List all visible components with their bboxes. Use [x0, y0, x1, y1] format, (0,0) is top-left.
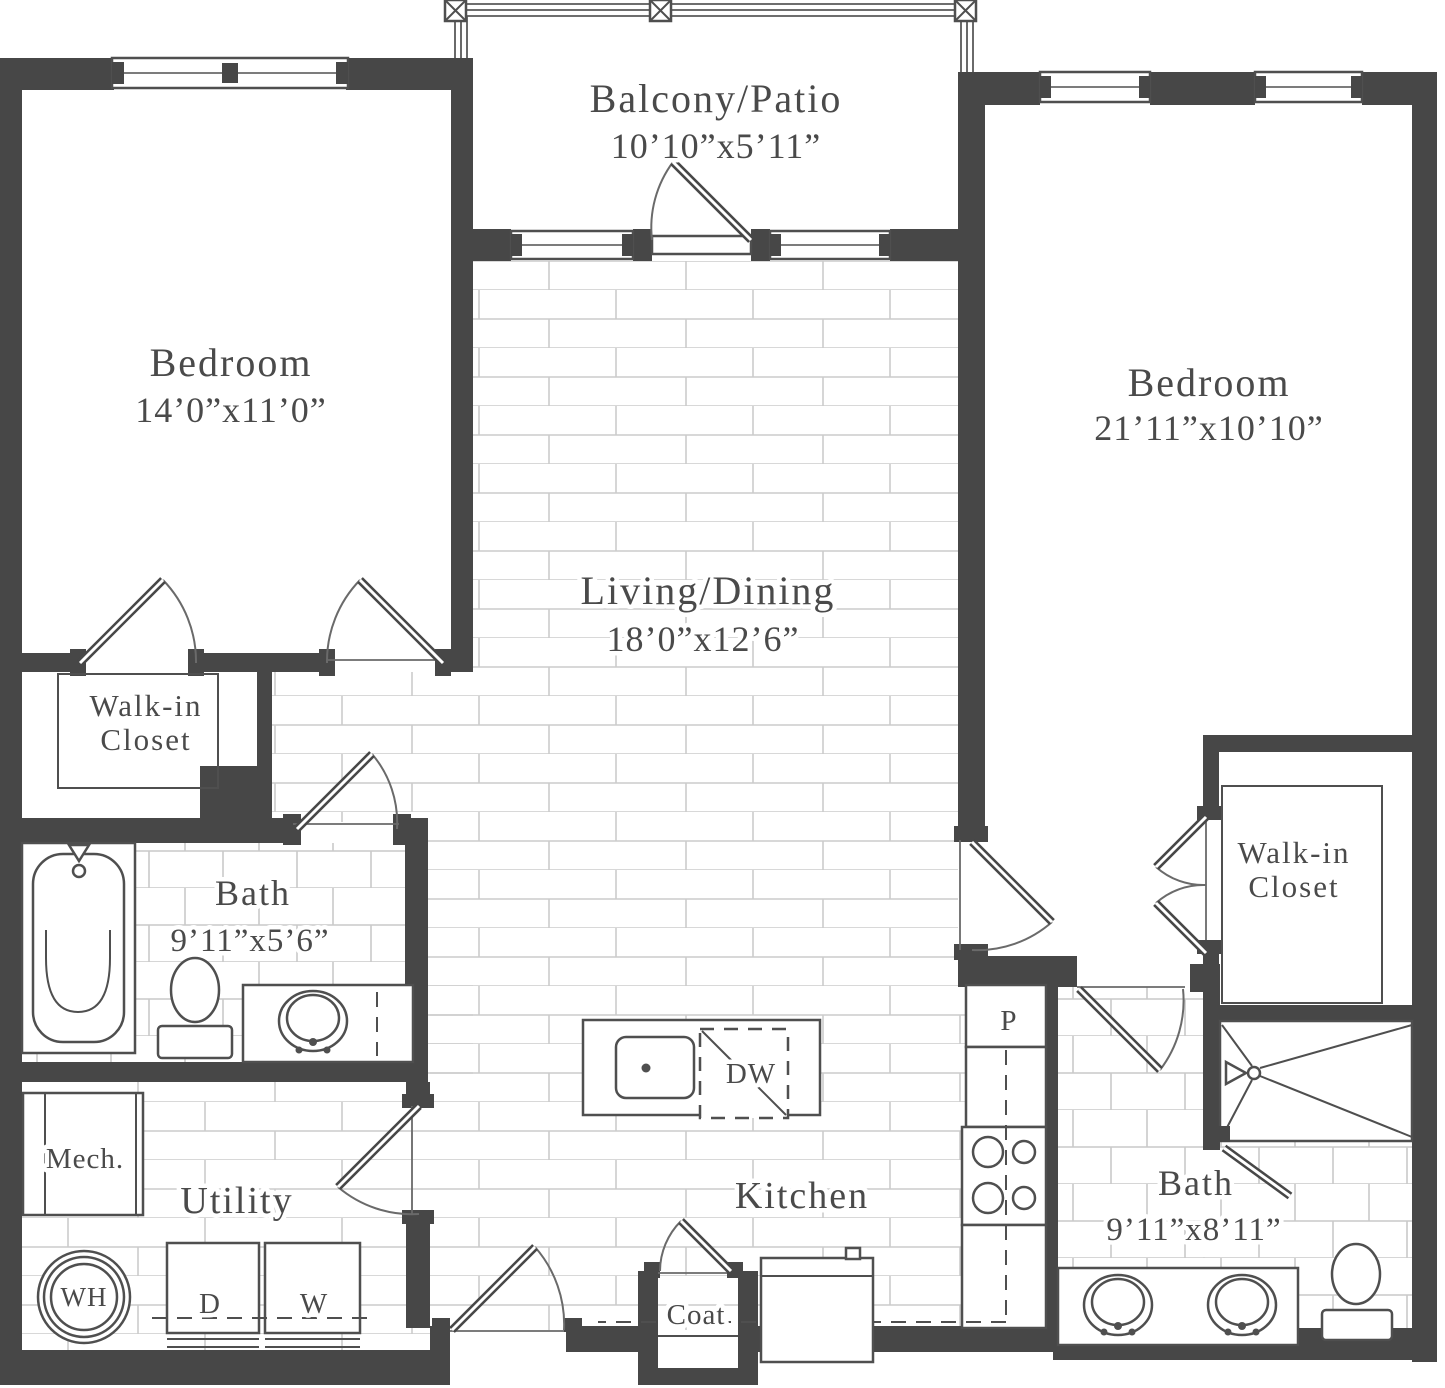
door-closet1 — [80, 580, 196, 663]
utility-label: Utility — [180, 1180, 293, 1222]
wall — [638, 1271, 658, 1385]
floor-plan: Balcony/Patio 10’10”x5’11” Bedroom 14’0”… — [0, 0, 1445, 1388]
wall — [0, 1350, 450, 1385]
balcony-railing — [445, 0, 976, 74]
double-door-closet2 — [1156, 817, 1206, 953]
floor-plan-drawing: Balcony/Patio 10’10”x5’11” Bedroom 14’0”… — [0, 0, 1445, 1388]
wall — [738, 1271, 758, 1385]
wall — [958, 72, 985, 838]
wall — [1203, 988, 1220, 1150]
wall — [751, 229, 770, 261]
bath2-name: Bath — [1158, 1163, 1234, 1203]
door-post — [954, 826, 988, 842]
wall — [1412, 72, 1437, 1362]
railing-lines — [451, 4, 976, 16]
door-post — [432, 1318, 450, 1332]
door-post — [644, 1262, 660, 1278]
railing-post-icon — [955, 0, 976, 21]
door-balcony — [651, 162, 751, 254]
wall — [22, 818, 293, 843]
wall — [0, 58, 22, 1385]
living-dims: 18’0”x12’6” — [607, 619, 800, 659]
vanity-sink — [243, 985, 413, 1062]
wall — [22, 1062, 428, 1082]
door-bedroom2 — [960, 840, 1052, 950]
hall-floor — [272, 672, 473, 822]
door-post — [564, 1318, 582, 1332]
wall — [0, 653, 78, 672]
balcony-name: Balcony/Patio — [590, 76, 843, 121]
kitchen-label: Kitchen — [735, 1175, 869, 1217]
wall — [958, 956, 1077, 987]
island-sink-icon — [616, 1037, 694, 1098]
bedroom2-dims: 21’11”x10’10” — [1094, 408, 1324, 448]
window — [1040, 72, 1150, 102]
wall — [1362, 72, 1437, 105]
wall — [1203, 735, 1412, 752]
door-bedroom1 — [327, 580, 443, 663]
wall — [638, 1368, 758, 1385]
water-heater-label: WH — [61, 1282, 108, 1312]
double-vanity-sink — [1058, 1268, 1298, 1345]
walkin2-line1: Walk-in — [1237, 835, 1350, 870]
railing-post-icon — [445, 0, 466, 21]
balcony-dims: 10’10”x5’11” — [611, 126, 822, 166]
wall — [1150, 72, 1255, 105]
bedroom1-name: Bedroom — [150, 340, 313, 385]
wall — [406, 1216, 430, 1328]
bedroom1-dims: 14’0”x11’0” — [135, 390, 327, 430]
bath1-dims: 9’11”x5’6” — [170, 923, 329, 959]
railing-lines — [961, 16, 973, 74]
wall — [0, 58, 114, 90]
living-floor — [473, 261, 958, 965]
mech-label: Mech. — [46, 1143, 124, 1175]
dryer-label: D — [199, 1288, 221, 1320]
wall — [196, 653, 327, 672]
pantry-label: P — [1000, 1005, 1017, 1037]
wall — [451, 58, 473, 672]
stove-icon — [962, 1127, 1046, 1225]
wall — [257, 670, 272, 772]
window — [511, 231, 633, 259]
door-post — [1190, 964, 1220, 992]
wall — [1203, 735, 1219, 817]
walkin1-line2: Closet — [100, 722, 191, 757]
railing-post-icon — [650, 0, 671, 21]
bath2-dims: 9’11”x8’11” — [1106, 1212, 1281, 1248]
bath1-name: Bath — [215, 873, 291, 913]
counter — [962, 1225, 1046, 1328]
living-name: Living/Dining — [581, 568, 836, 613]
wall — [451, 229, 511, 261]
coat-label: Coat — [667, 1299, 726, 1331]
window — [112, 58, 348, 88]
dishwasher-label: DW — [726, 1058, 776, 1090]
walkin2-line2: Closet — [1248, 869, 1339, 904]
window — [770, 231, 890, 259]
washer-label: W — [300, 1288, 328, 1320]
kitchen-island — [583, 1020, 820, 1118]
door-post — [402, 1210, 434, 1224]
walkin1-line1: Walk-in — [89, 688, 202, 723]
bathtub-icon — [22, 843, 135, 1053]
wall — [633, 229, 652, 261]
window — [1255, 72, 1362, 102]
fridge-icon — [761, 1248, 873, 1362]
bedroom2-name: Bedroom — [1128, 360, 1291, 405]
